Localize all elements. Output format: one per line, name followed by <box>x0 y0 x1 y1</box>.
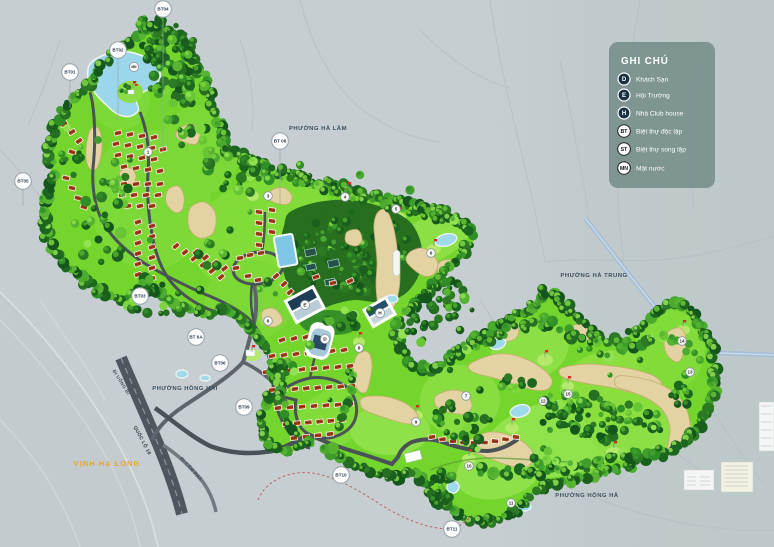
svg-text:BT05: BT05 <box>17 179 29 184</box>
svg-text:6: 6 <box>267 319 270 324</box>
svg-text:BT03: BT03 <box>134 294 146 299</box>
svg-text:6: 6 <box>430 251 433 256</box>
svg-text:PHƯỜNG HỒNG HẢI: PHƯỜNG HỒNG HẢI <box>152 384 218 392</box>
svg-text:BT09: BT09 <box>238 405 250 410</box>
svg-text:BT06: BT06 <box>214 361 226 366</box>
svg-text:BT 08: BT 08 <box>274 139 287 144</box>
svg-text:4: 4 <box>344 195 347 200</box>
svg-text:Biệt thự song lập: Biệt thự song lập <box>636 146 686 153</box>
svg-text:H: H <box>378 311 382 317</box>
svg-text:5: 5 <box>395 207 398 212</box>
svg-text:Biệt thự độc lập: Biệt thự độc lập <box>636 128 683 135</box>
svg-text:1: 1 <box>147 150 150 155</box>
svg-text:PHƯỜNG HÀ TRUNG: PHƯỜNG HÀ TRUNG <box>560 271 627 279</box>
svg-text:BT10: BT10 <box>335 473 347 478</box>
svg-text:BT04: BT04 <box>157 7 169 12</box>
svg-text:BT: BT <box>621 129 629 135</box>
svg-text:13: 13 <box>687 370 693 375</box>
svg-text:14: 14 <box>679 339 685 344</box>
svg-text:BT 6A: BT 6A <box>189 335 203 340</box>
svg-text:Khách Sạn: Khách Sạn <box>636 76 669 83</box>
svg-text:7: 7 <box>465 394 468 399</box>
svg-text:D: D <box>622 77 627 83</box>
svg-text:ST: ST <box>621 147 628 153</box>
svg-text:Mặt nước: Mặt nước <box>636 165 665 172</box>
svg-text:Hội Trường: Hội Trường <box>636 92 670 99</box>
svg-text:Nhà Club house: Nhà Club house <box>636 110 684 117</box>
svg-text:MN: MN <box>620 166 628 172</box>
svg-text:8: 8 <box>358 346 361 351</box>
svg-text:11: 11 <box>509 501 514 506</box>
svg-text:GHI CHÚ: GHI CHÚ <box>621 55 669 67</box>
svg-text:MN: MN <box>132 65 138 69</box>
svg-text:3: 3 <box>267 194 270 199</box>
svg-text:E: E <box>622 93 626 99</box>
svg-text:D: D <box>323 337 327 343</box>
svg-text:BT01: BT01 <box>64 70 76 75</box>
svg-text:9: 9 <box>415 420 418 425</box>
svg-text:H: H <box>622 111 626 117</box>
svg-text:BT02: BT02 <box>112 48 124 53</box>
svg-text:12: 12 <box>540 399 546 404</box>
svg-text:BT11: BT11 <box>447 527 458 532</box>
svg-text:15: 15 <box>565 392 571 397</box>
svg-text:10: 10 <box>466 464 472 469</box>
svg-text:PHƯỜNG HỒNG HÀ: PHƯỜNG HỒNG HÀ <box>555 491 619 499</box>
svg-text:PHƯỜNG HÀ LẦM: PHƯỜNG HÀ LẦM <box>289 124 347 132</box>
svg-text:VỊNH HẠ LONG: VỊNH HẠ LONG <box>74 459 141 468</box>
